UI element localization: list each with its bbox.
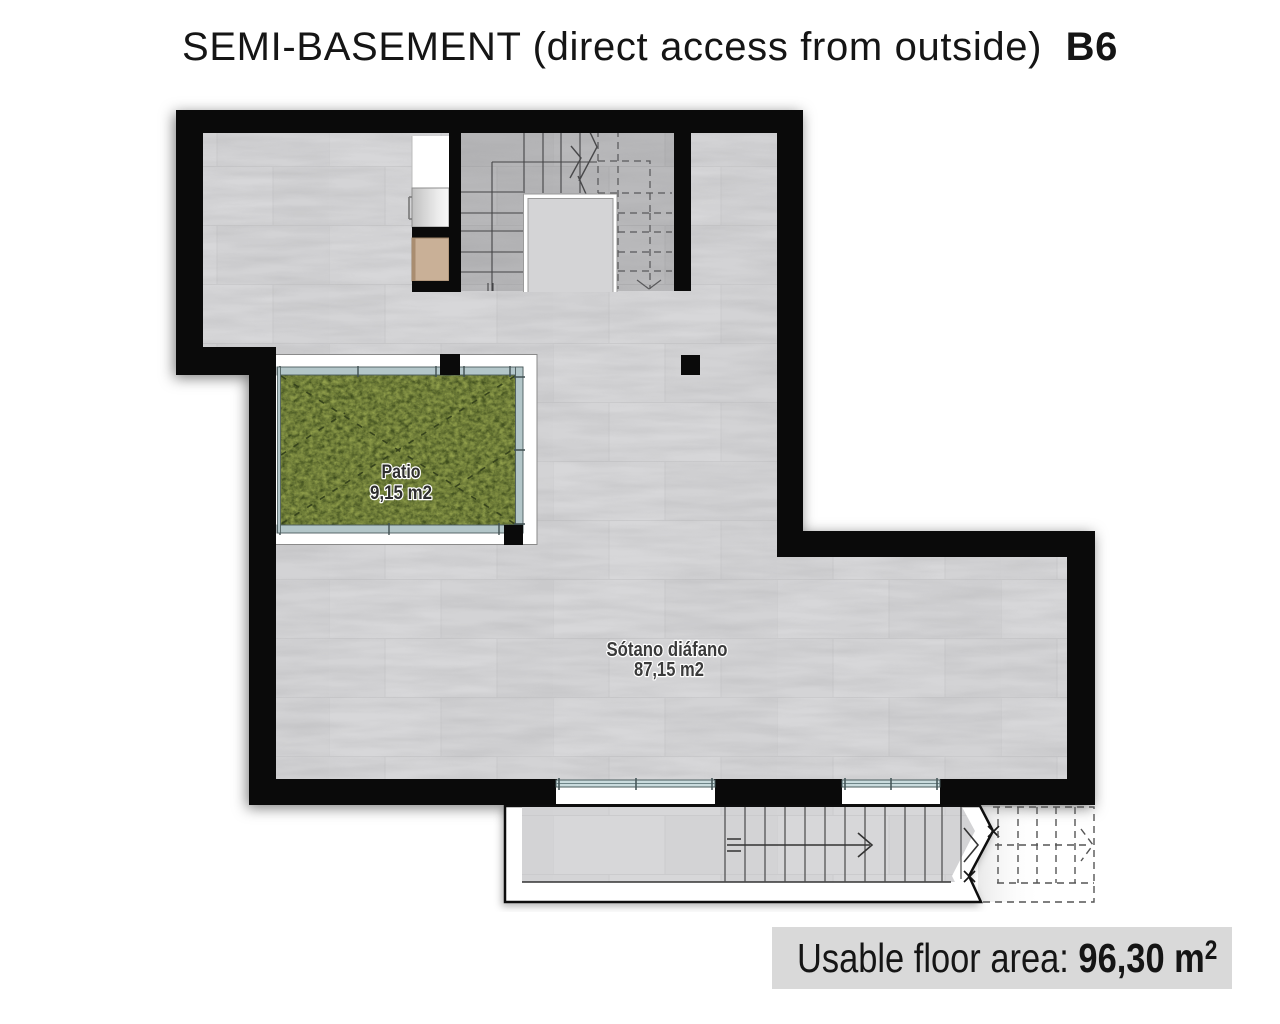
svg-text:Sótano diáfano: Sótano diáfano (607, 639, 728, 661)
svg-text:87,15 m2: 87,15 m2 (634, 659, 704, 681)
svg-text:Patio: Patio (382, 462, 421, 483)
svg-text:9,15 m2: 9,15 m2 (370, 483, 432, 504)
